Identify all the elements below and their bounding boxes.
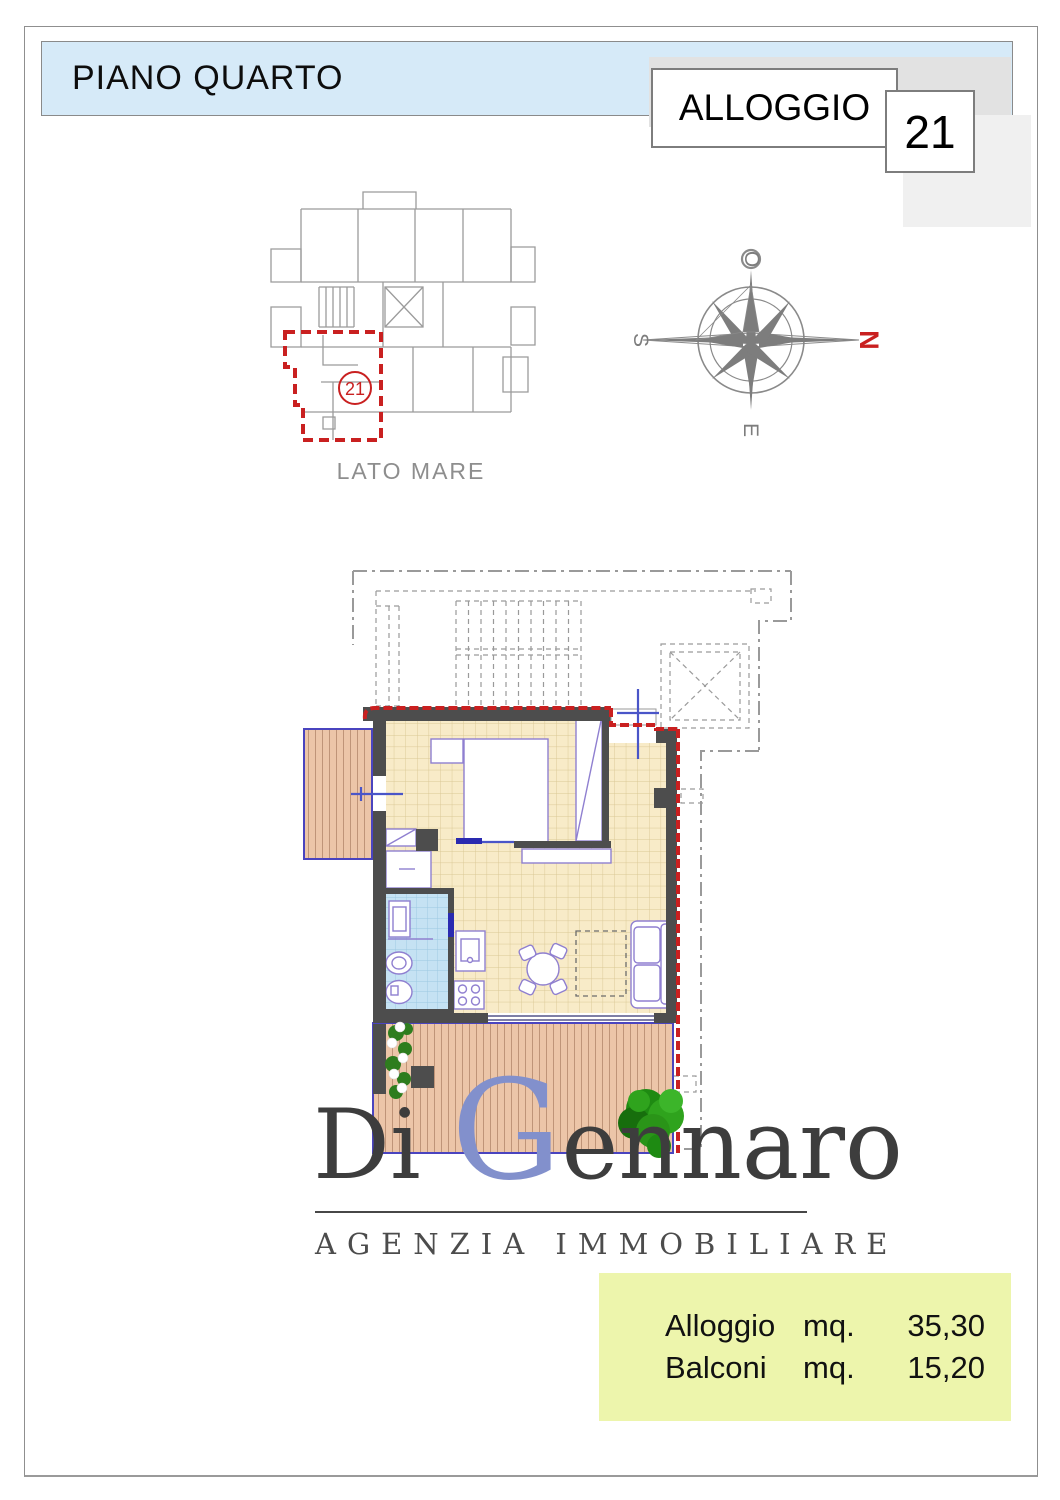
floor-title: PIANO QUARTO xyxy=(42,59,343,98)
bed xyxy=(464,739,548,842)
logo-text-g: G xyxy=(451,1050,561,1211)
agency-logo: Di Gennaro AGENZIA IMMOBILIARE xyxy=(313,1083,813,1193)
key-plan-unit-number: 21 xyxy=(345,379,365,399)
summary-label: Balconi xyxy=(665,1350,803,1386)
compass-east-label: E xyxy=(739,423,762,437)
key-plan-building xyxy=(271,192,535,440)
unit-number: 21 xyxy=(904,105,955,159)
logo-divider xyxy=(315,1211,807,1213)
summary-label: Alloggio xyxy=(665,1308,803,1344)
compass-west-label: O xyxy=(740,251,763,267)
document-canvas: PIANO QUARTO ALLOGGIO 21 21 LATO MARE xyxy=(0,0,1060,1500)
key-plan: 21 LATO MARE xyxy=(263,187,553,487)
summary-unit: mq. xyxy=(803,1308,885,1344)
area-summary-box: Alloggio mq. 35,30 Balconi mq. 15,20 xyxy=(599,1273,1011,1421)
toilet xyxy=(386,981,412,1004)
unit-number-box: 21 xyxy=(885,90,975,173)
terrace-sliding-door xyxy=(488,1016,654,1020)
compass-rose-icon: O S N E xyxy=(629,237,879,452)
compass-graphic xyxy=(643,250,859,410)
dresser xyxy=(522,849,611,863)
agency-logo-name: Di Gennaro xyxy=(313,1083,813,1193)
compass-north-label: N xyxy=(854,330,879,350)
unit-label-box: ALLOGGIO xyxy=(651,68,898,148)
nightstand xyxy=(431,739,463,763)
compass-south-label: S xyxy=(629,333,652,347)
summary-row-balconi: Balconi mq. 15,20 xyxy=(665,1350,1011,1386)
document-page: PIANO QUARTO ALLOGGIO 21 21 LATO MARE xyxy=(24,26,1038,1477)
summary-row-alloggio: Alloggio mq. 35,30 xyxy=(665,1308,1011,1344)
stove xyxy=(454,981,484,1009)
bidet xyxy=(386,952,412,974)
top-window xyxy=(611,709,656,725)
logo-text-rest: ennaro xyxy=(561,1089,902,1201)
wardrobe xyxy=(576,716,602,841)
unit-label: ALLOGGIO xyxy=(679,87,870,129)
key-plan-caption: LATO MARE xyxy=(337,458,486,484)
summary-value: 15,20 xyxy=(885,1350,985,1386)
summary-value: 35,30 xyxy=(885,1308,985,1344)
kitchen-sink xyxy=(456,931,485,971)
logo-text-di: Di xyxy=(313,1089,421,1201)
agency-logo-subtitle: AGENZIA IMMOBILIARE xyxy=(315,1227,807,1261)
summary-unit: mq. xyxy=(803,1350,885,1386)
